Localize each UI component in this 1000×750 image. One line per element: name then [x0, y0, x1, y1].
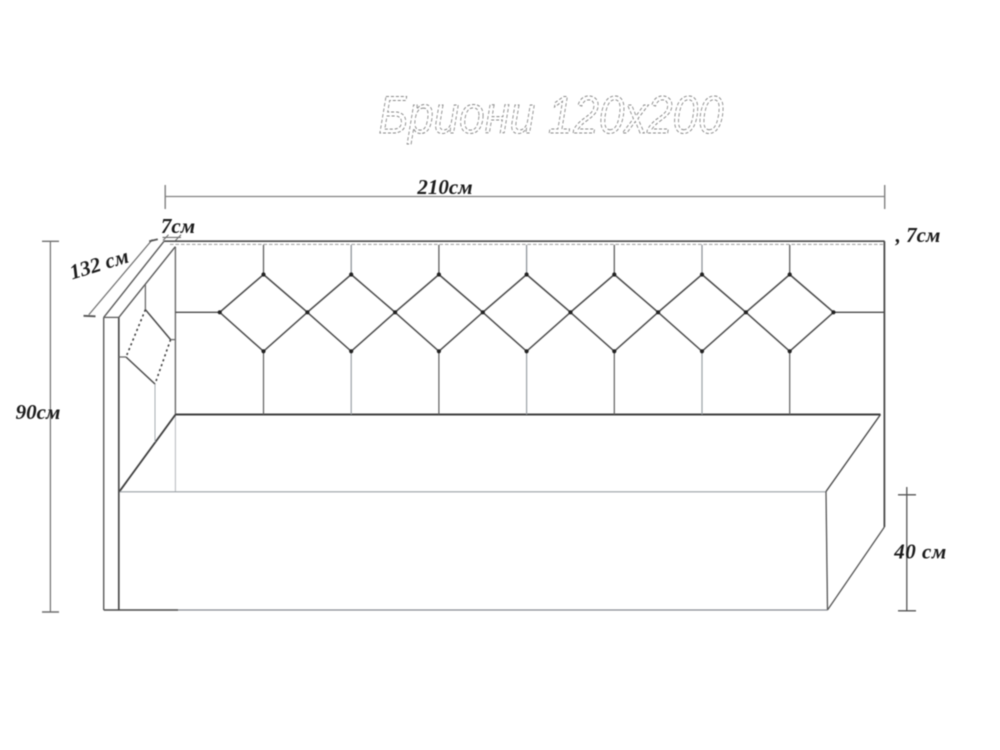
svg-text:Бриони 120х200: Бриони 120х200 [379, 86, 724, 145]
svg-text:132 см: 132 см [67, 244, 132, 285]
svg-text:, 7см: , 7см [895, 223, 941, 247]
svg-text:210см: 210см [416, 175, 472, 199]
svg-text:90см: 90см [16, 400, 61, 424]
svg-text:40 см: 40 см [893, 540, 946, 564]
svg-text:7см: 7см [161, 214, 195, 238]
